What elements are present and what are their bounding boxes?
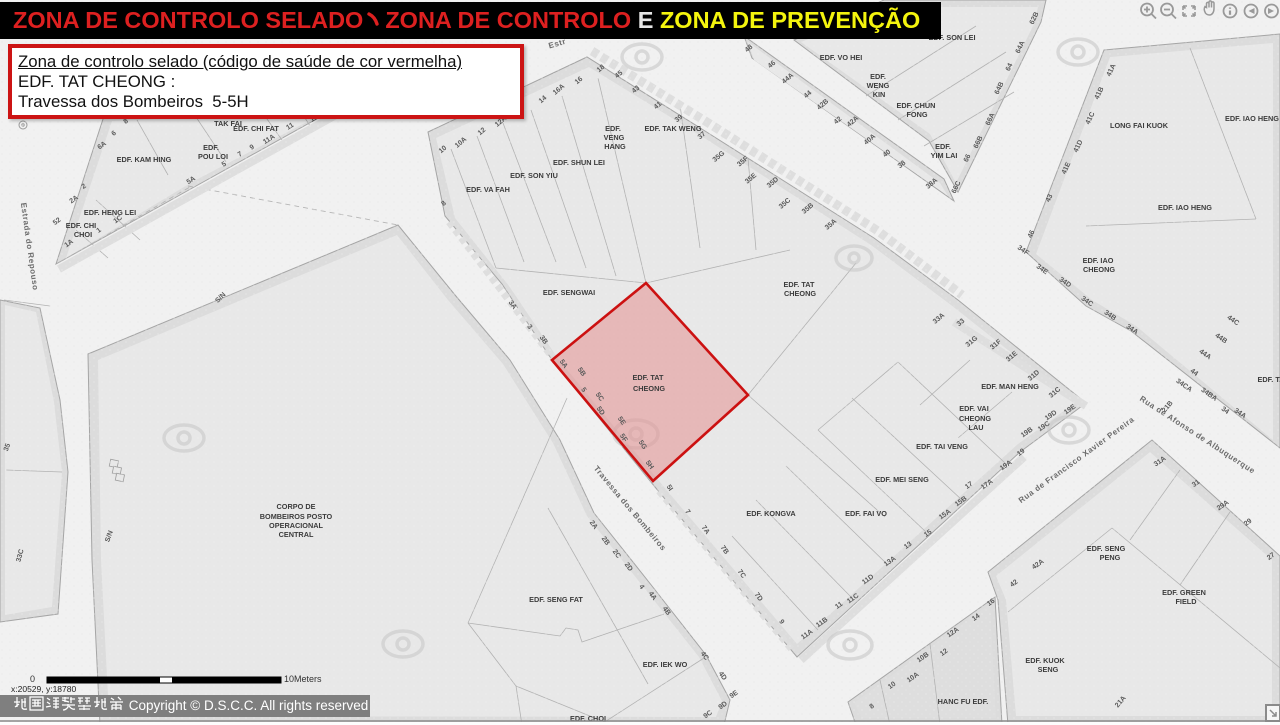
svg-text:SENG: SENG: [1038, 665, 1059, 674]
svg-text:EDF.: EDF.: [605, 124, 621, 133]
svg-text:TAK FAI: TAK FAI: [214, 119, 242, 128]
svg-text:EDF. VO HEI: EDF. VO HEI: [820, 53, 863, 62]
svg-text:KIN: KIN: [873, 90, 886, 99]
svg-text:CHEONG: CHEONG: [633, 384, 665, 393]
svg-text:EDF. VA FAH: EDF. VA FAH: [466, 185, 510, 194]
svg-text:VENG: VENG: [604, 133, 625, 142]
svg-text:LAU: LAU: [969, 423, 984, 432]
svg-text:OPERACIONAL: OPERACIONAL: [269, 521, 323, 530]
svg-text:EDF. GREEN: EDF. GREEN: [1162, 588, 1206, 597]
svg-text:EDF. TAT: EDF. TAT: [784, 280, 815, 289]
svg-text:EDF. TAI VENG: EDF. TAI VENG: [916, 442, 968, 451]
svg-text:CORPO DE: CORPO DE: [277, 502, 316, 511]
svg-text:POU LOI: POU LOI: [198, 152, 228, 161]
svg-text:FONG: FONG: [906, 110, 927, 119]
svg-text:EDF. SENGWAI: EDF. SENGWAI: [543, 288, 595, 297]
svg-text:EDF. MAN HENG: EDF. MAN HENG: [981, 382, 1039, 391]
svg-text:EDF. SHUN LEI: EDF. SHUN LEI: [553, 158, 605, 167]
svg-text:EDF. TAT: EDF. TAT: [633, 373, 664, 382]
svg-text:EDF.: EDF.: [870, 72, 886, 81]
svg-text:EDF. KUOK: EDF. KUOK: [1025, 656, 1065, 665]
svg-text:HANG: HANG: [604, 142, 626, 151]
svg-text:EDF. SON YIU: EDF. SON YIU: [510, 171, 558, 180]
svg-text:EDF. HENG LEI: EDF. HENG LEI: [84, 208, 136, 217]
svg-text:EDF.: EDF.: [203, 143, 219, 152]
svg-text:EDF. TA: EDF. TA: [1257, 375, 1280, 384]
svg-text:EDF.: EDF.: [935, 142, 951, 151]
svg-text:FIELD: FIELD: [1175, 597, 1196, 606]
svg-text:CHEONG: CHEONG: [784, 289, 816, 298]
svg-text:EDF. CHUN: EDF. CHUN: [897, 101, 936, 110]
svg-text:EDF. TAK WENG: EDF. TAK WENG: [644, 124, 701, 133]
svg-text:EDF. CHI: EDF. CHI: [66, 221, 96, 230]
svg-text:EDF. MEI SENG: EDF. MEI SENG: [875, 475, 929, 484]
svg-text:WENG: WENG: [867, 81, 890, 90]
svg-text:EDF. IAO HENG: EDF. IAO HENG: [1158, 203, 1212, 212]
svg-text:CHEONG: CHEONG: [1083, 265, 1115, 274]
svg-text:LONG FAI KUOK: LONG FAI KUOK: [1110, 121, 1169, 130]
svg-text:EDF. KONGVA: EDF. KONGVA: [746, 509, 796, 518]
svg-text:CHOI: CHOI: [74, 230, 92, 239]
svg-text:EDF. IAO: EDF. IAO: [1083, 256, 1114, 265]
svg-text:BOMBEIROS POSTO: BOMBEIROS POSTO: [260, 512, 333, 521]
svg-text:YIM LAI: YIM LAI: [931, 151, 958, 160]
svg-text:EDF. IAO HENG: EDF. IAO HENG: [1225, 114, 1279, 123]
svg-text:EDF. KAM HING: EDF. KAM HING: [117, 155, 172, 164]
svg-text:PENG: PENG: [1100, 553, 1121, 562]
svg-text:EDF. SENG: EDF. SENG: [1087, 544, 1126, 553]
svg-text:EDF. IEK WO: EDF. IEK WO: [643, 660, 688, 669]
svg-text:EDF. FAI VO: EDF. FAI VO: [845, 509, 887, 518]
svg-text:HANC FU EDF.: HANC FU EDF.: [938, 697, 989, 706]
svg-text:CENTRAL: CENTRAL: [279, 530, 314, 539]
svg-text:EDF. VAI: EDF. VAI: [959, 404, 988, 413]
svg-text:EDF. SENG FAT: EDF. SENG FAT: [529, 595, 583, 604]
svg-text:CHEONG: CHEONG: [959, 414, 991, 423]
